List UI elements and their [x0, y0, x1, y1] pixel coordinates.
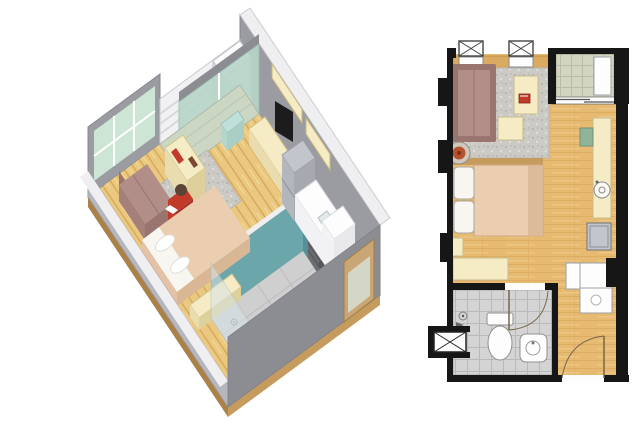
- entry-door-opening: [562, 375, 604, 382]
- wall-south-bath: [447, 375, 558, 382]
- plan-ac-ledge-hatch: [434, 332, 466, 352]
- plan-sliding-door: [552, 97, 616, 104]
- wall-bathroom-east: [552, 283, 558, 375]
- plan-laptop: [519, 94, 530, 103]
- plan-side-table: [498, 117, 523, 140]
- plan-counter: [593, 118, 611, 218]
- wall-niche-bottom: [428, 352, 470, 358]
- wall-column: [440, 233, 453, 262]
- wall-niche-top: [428, 326, 470, 332]
- bathroom-door-opening: [505, 283, 545, 290]
- plan-pillow: [454, 201, 474, 233]
- window-symbol: [459, 41, 483, 56]
- plan-bench: [453, 258, 508, 280]
- wall-balcony-left: [548, 48, 556, 104]
- wall-corner-ne: [614, 48, 629, 104]
- wall-column: [438, 78, 453, 106]
- plan-sofa: [452, 64, 496, 142]
- window-glazing: [509, 57, 533, 67]
- blanket-fold: [528, 165, 543, 236]
- plan-appliance: [587, 223, 611, 250]
- plan-wash-basin: [520, 334, 547, 362]
- iso-3d-view: [80, 8, 390, 417]
- wall-east: [616, 104, 628, 375]
- floorplan-canvas: 3d-isometric-cutaway-view: [0, 0, 640, 438]
- wall-niche-left: [428, 332, 434, 352]
- wall-column: [438, 140, 453, 173]
- apartment-plan-image: { "views": { "iso": { "label": "3d-isome…: [0, 0, 640, 438]
- plan-pillow: [454, 167, 474, 199]
- person-head: [175, 184, 187, 196]
- wall-column: [606, 258, 628, 287]
- plan-bed: [454, 165, 543, 236]
- plan-2d-view: 2d-floor-plan-view: [428, 41, 629, 382]
- plan-green-chair: [580, 128, 593, 146]
- plan-ac-unit: [594, 57, 611, 95]
- window-symbol: [509, 41, 533, 56]
